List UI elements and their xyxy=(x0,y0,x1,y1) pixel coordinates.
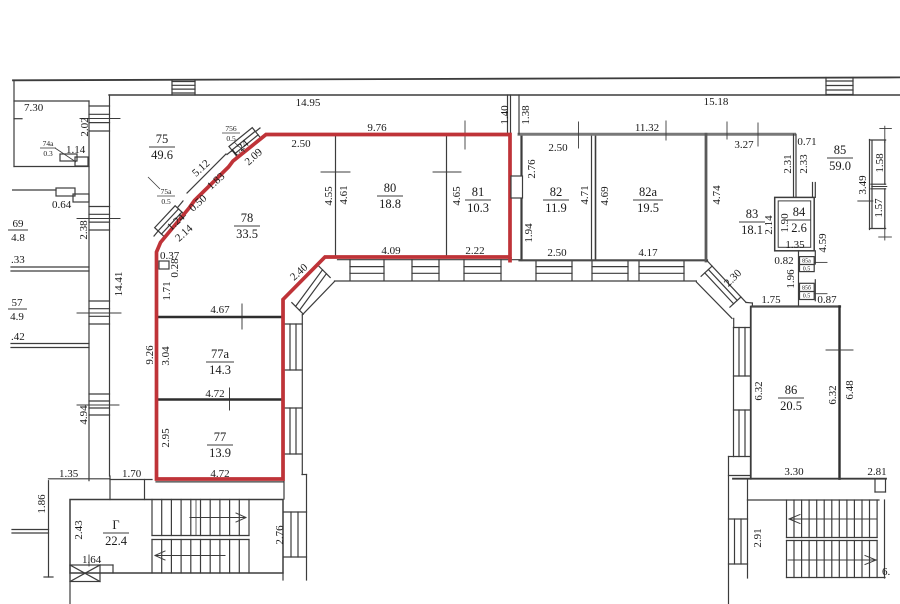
svg-text:756: 756 xyxy=(225,124,237,133)
svg-text:4.09: 4.09 xyxy=(381,245,401,257)
svg-text:2.76: 2.76 xyxy=(274,525,286,545)
svg-text:4.67: 4.67 xyxy=(210,304,230,316)
svg-text:77а: 77а xyxy=(211,347,230,361)
svg-text:22.4: 22.4 xyxy=(105,534,128,548)
svg-text:2.33: 2.33 xyxy=(798,154,810,174)
svg-text:3.04: 3.04 xyxy=(160,346,172,366)
svg-text:1.14: 1.14 xyxy=(66,144,86,156)
svg-text:2.50: 2.50 xyxy=(548,142,568,154)
svg-text:0.87: 0.87 xyxy=(817,294,837,306)
svg-text:77: 77 xyxy=(214,430,227,444)
svg-text:6.32: 6.32 xyxy=(753,381,765,400)
svg-text:4.94: 4.94 xyxy=(78,405,90,425)
svg-text:0.28: 0.28 xyxy=(169,258,181,278)
svg-text:4.74: 4.74 xyxy=(711,185,723,205)
svg-text:11.32: 11.32 xyxy=(635,122,659,134)
svg-text:69: 69 xyxy=(13,218,25,230)
svg-text:6.32: 6.32 xyxy=(827,385,839,404)
svg-text:0.5: 0.5 xyxy=(803,267,811,273)
svg-text:2.14: 2.14 xyxy=(763,215,775,235)
svg-text:0.5: 0.5 xyxy=(226,134,236,143)
svg-text:0.3: 0.3 xyxy=(43,149,53,158)
svg-text:2.6: 2.6 xyxy=(791,221,807,235)
svg-text:1.35: 1.35 xyxy=(785,239,805,251)
svg-text:Г: Г xyxy=(112,518,119,532)
svg-text:78: 78 xyxy=(241,211,254,225)
svg-text:2.76: 2.76 xyxy=(526,159,538,179)
svg-text:2.91: 2.91 xyxy=(752,528,764,547)
svg-text:1.57: 1.57 xyxy=(873,198,885,218)
svg-text:1.40: 1.40 xyxy=(499,105,511,125)
svg-text:10.3: 10.3 xyxy=(467,201,489,215)
svg-text:1.71: 1.71 xyxy=(161,281,173,300)
svg-text:14.3: 14.3 xyxy=(209,363,231,377)
svg-text:4.61: 4.61 xyxy=(338,185,350,204)
svg-text:1.94: 1.94 xyxy=(523,223,535,243)
svg-text:2.02: 2.02 xyxy=(79,117,91,136)
svg-text:85а: 85а xyxy=(802,259,811,265)
svg-text:0.71: 0.71 xyxy=(797,136,816,148)
svg-text:6.: 6. xyxy=(882,566,891,578)
svg-text:1.86: 1.86 xyxy=(36,494,48,514)
svg-text:1.58: 1.58 xyxy=(874,153,886,173)
svg-text:82: 82 xyxy=(550,185,563,199)
svg-text:33.5: 33.5 xyxy=(236,227,258,241)
svg-text:49.6: 49.6 xyxy=(151,148,173,162)
svg-text:75: 75 xyxy=(156,132,169,146)
svg-text:0.82: 0.82 xyxy=(774,255,793,267)
svg-text:83: 83 xyxy=(746,207,759,221)
svg-text:.33: .33 xyxy=(11,254,25,266)
svg-text:0.5: 0.5 xyxy=(803,294,811,300)
svg-text:4.17: 4.17 xyxy=(638,247,658,259)
svg-text:4.72: 4.72 xyxy=(210,468,229,480)
svg-text:74а: 74а xyxy=(43,139,55,148)
svg-text:75а: 75а xyxy=(161,187,173,196)
svg-text:13.9: 13.9 xyxy=(209,446,231,460)
svg-text:1.70: 1.70 xyxy=(122,468,142,480)
svg-text:2.95: 2.95 xyxy=(160,428,172,448)
svg-text:18.8: 18.8 xyxy=(379,197,401,211)
svg-text:19.5: 19.5 xyxy=(637,201,659,215)
svg-text:18.1: 18.1 xyxy=(741,223,763,237)
svg-text:14.95: 14.95 xyxy=(296,97,321,109)
svg-text:57: 57 xyxy=(12,297,24,309)
svg-text:4.9: 4.9 xyxy=(10,311,24,323)
svg-text:2.50: 2.50 xyxy=(291,138,311,150)
svg-text:4.72: 4.72 xyxy=(205,388,224,400)
svg-text:14.41: 14.41 xyxy=(113,272,125,297)
svg-text:4.59: 4.59 xyxy=(817,233,829,253)
svg-text:4.65: 4.65 xyxy=(451,186,463,206)
svg-text:9.26: 9.26 xyxy=(144,345,156,365)
svg-text:86: 86 xyxy=(785,383,798,397)
svg-text:20.5: 20.5 xyxy=(780,399,802,413)
svg-text:0.64: 0.64 xyxy=(52,199,72,211)
svg-text:2.50: 2.50 xyxy=(547,247,567,259)
svg-text:3.49: 3.49 xyxy=(857,175,869,195)
svg-text:.42: .42 xyxy=(11,331,25,343)
svg-text:81: 81 xyxy=(472,185,485,199)
svg-text:7.30: 7.30 xyxy=(24,102,44,114)
svg-text:9.76: 9.76 xyxy=(367,122,387,134)
svg-text:2.38: 2.38 xyxy=(78,220,90,240)
svg-text:1.75: 1.75 xyxy=(761,294,781,306)
svg-text:85: 85 xyxy=(834,143,847,157)
svg-text:6.48: 6.48 xyxy=(844,380,856,400)
svg-text:82а: 82а xyxy=(639,185,658,199)
svg-text:84: 84 xyxy=(793,205,806,219)
svg-text:4.69: 4.69 xyxy=(599,186,611,206)
svg-text:3.27: 3.27 xyxy=(734,139,754,151)
svg-text:1.90: 1.90 xyxy=(779,213,791,233)
svg-text:2.81: 2.81 xyxy=(867,466,886,478)
svg-text:4.55: 4.55 xyxy=(323,186,335,206)
svg-text:2.43: 2.43 xyxy=(73,520,85,540)
svg-text:11.9: 11.9 xyxy=(545,201,566,215)
svg-text:1.35: 1.35 xyxy=(59,468,79,480)
svg-text:4.8: 4.8 xyxy=(11,232,25,244)
svg-text:1.64: 1.64 xyxy=(82,554,102,566)
svg-text:85б: 85б xyxy=(802,285,811,292)
svg-text:2.31: 2.31 xyxy=(782,154,794,173)
svg-text:3.30: 3.30 xyxy=(784,466,804,478)
svg-text:59.0: 59.0 xyxy=(829,159,851,173)
svg-text:4.71: 4.71 xyxy=(579,185,591,204)
svg-text:0.5: 0.5 xyxy=(161,197,171,206)
svg-text:1.96: 1.96 xyxy=(785,269,797,289)
svg-text:1.38: 1.38 xyxy=(520,105,532,125)
svg-text:2.22: 2.22 xyxy=(465,245,484,257)
svg-text:80: 80 xyxy=(384,181,397,195)
svg-text:15.18: 15.18 xyxy=(704,96,729,108)
